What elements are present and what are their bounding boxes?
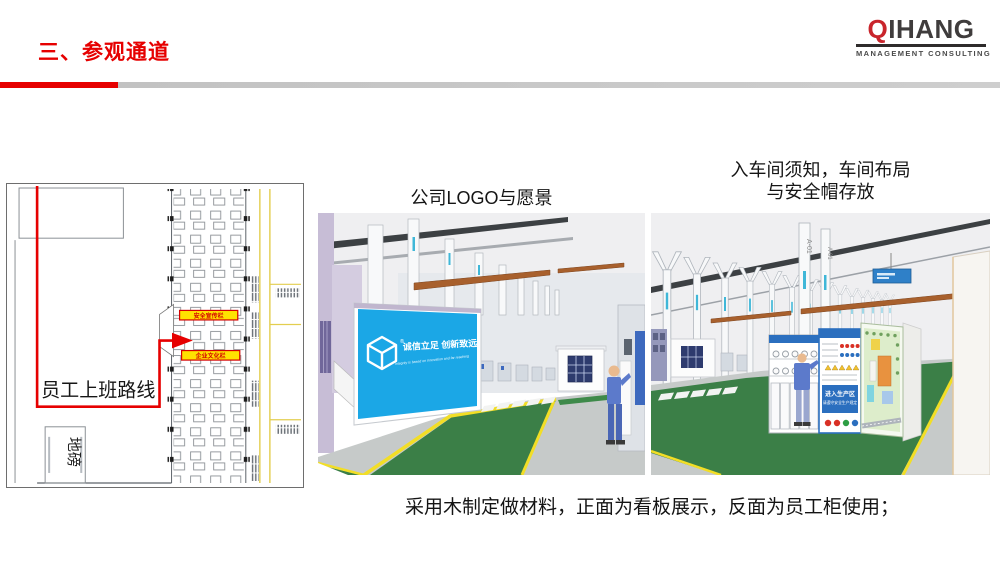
logo-rule — [856, 44, 986, 47]
site-map-board — [861, 323, 903, 437]
workshop-scene-logo-banner: ® 诚信立足 创新致远 Integrity is based on innova… — [318, 213, 645, 475]
column-label-a01-2: A-01 — [826, 247, 832, 260]
employee-route-line — [37, 186, 187, 407]
display-unit: 进入生产区 请遵守安全生产规定 — [769, 323, 921, 441]
logo-billboard: ® 诚信立足 创新致远 Integrity is based on innova… — [354, 303, 481, 425]
board-line1: 进入生产区 — [825, 390, 855, 398]
plan-door — [160, 304, 174, 356]
workshop-scene-notice-boards: A-01 A-01 — [651, 213, 990, 475]
logo-name-rest: IHANG — [888, 14, 974, 44]
page-title: 三、参观通道 — [38, 36, 170, 66]
footer-note: 采用木制定做材料，正面为看板展示，反面为员工柜使用； — [300, 492, 1000, 519]
board-bottom-label: 企业文化栏 — [195, 352, 226, 360]
board-line2: 请遵守安全生产规定 — [823, 400, 857, 405]
header-divider — [0, 82, 1000, 88]
board-top-label: 安全宣传栏 — [194, 312, 224, 320]
white-hut — [556, 346, 606, 391]
board-top-marker: 安全宣传栏 — [180, 310, 238, 320]
weighbridge-label: 地磅 — [65, 437, 82, 467]
column-label-a01: A-01 — [805, 239, 812, 254]
qihang-logo: QIHANG MANAGEMENT CONSULTING — [856, 16, 986, 58]
floor-plan-panel: 地磅 — [6, 183, 304, 488]
caption-right-line1: 入车间须知，车间布局 — [651, 160, 990, 182]
caption-left-image: 公司LOGO与愿景 — [318, 188, 645, 210]
logo-name: QIHANG — [856, 16, 986, 42]
plan-workshop-strip — [168, 189, 250, 483]
board-bottom-marker: 企业文化栏 — [182, 351, 240, 361]
plan-roads — [251, 189, 301, 483]
route-label: 员工上班路线 — [41, 380, 155, 402]
divider-red-segment — [0, 82, 118, 88]
plan-buildings — [15, 188, 172, 483]
logo-name-accent: Q — [867, 14, 888, 44]
safety-info-board: 进入生产区 请遵守安全生产规定 — [819, 329, 861, 433]
scene-mid-drawing: ® 诚信立足 创新致远 Integrity is based on innova… — [318, 213, 645, 475]
foreground-column — [953, 251, 990, 475]
logo-subtitle: MANAGEMENT CONSULTING — [856, 49, 986, 58]
divider-gray-segment — [118, 82, 1000, 88]
right-machines — [618, 305, 645, 451]
caption-right-line2: 与安全帽存放 — [651, 182, 990, 204]
floor-plan-drawing: 地磅 — [7, 184, 303, 487]
caption-right-image: 入车间须知，车间布局 与安全帽存放 — [651, 160, 990, 204]
scene-right-drawing: A-01 A-01 — [651, 213, 990, 475]
slide: 三、参观通道 QIHANG MANAGEMENT CONSULTING — [0, 0, 1000, 562]
